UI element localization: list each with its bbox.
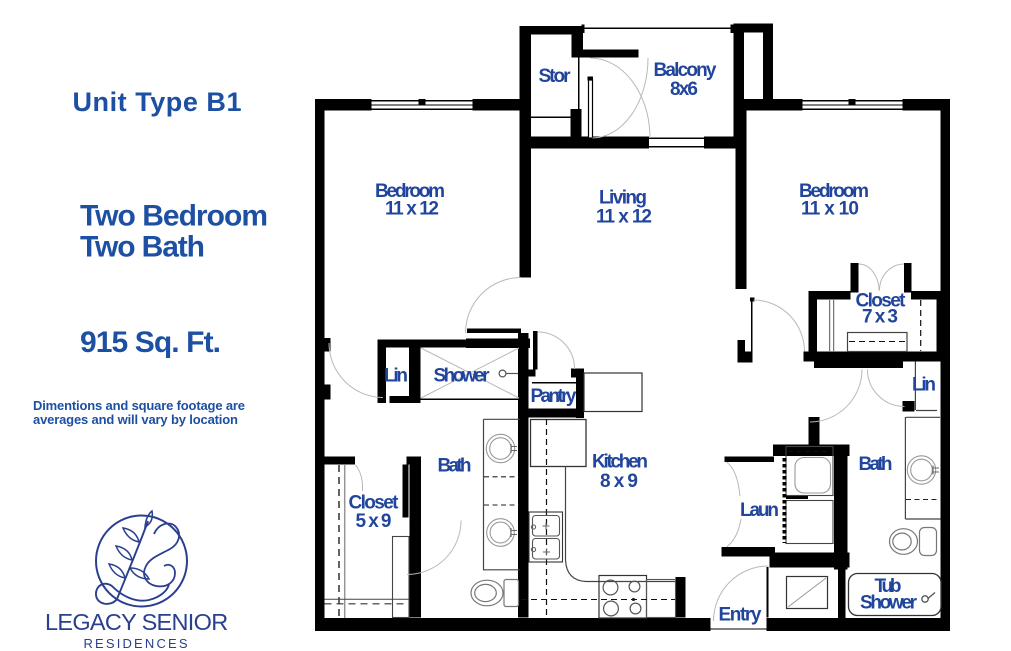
- svg-text:11 x 10: 11 x 10: [801, 199, 859, 220]
- svg-text:Balcony: Balcony: [654, 60, 717, 81]
- svg-text:Stor: Stor: [539, 66, 572, 87]
- svg-text:Shower: Shower: [860, 593, 918, 614]
- svg-text:Lin: Lin: [912, 375, 936, 396]
- svg-text:8x6: 8x6: [670, 79, 698, 100]
- svg-text:Lin: Lin: [384, 366, 408, 387]
- svg-text:Dimentions and square footage: Dimentions and square footage are: [33, 398, 245, 413]
- svg-text:Entry: Entry: [719, 605, 762, 626]
- svg-text:Laun: Laun: [740, 500, 779, 521]
- svg-text:11 x 12: 11 x 12: [596, 207, 652, 228]
- svg-text:Unit Type B1: Unit Type B1: [73, 87, 242, 117]
- svg-text:Bath: Bath: [438, 456, 472, 477]
- svg-text:Bath: Bath: [859, 454, 893, 475]
- svg-text:915 Sq. Ft.: 915 Sq. Ft.: [80, 326, 221, 359]
- svg-text:5 x 9: 5 x 9: [356, 511, 392, 532]
- svg-text:11 x 12: 11 x 12: [385, 199, 439, 220]
- svg-text:8 x 9: 8 x 9: [600, 471, 638, 492]
- svg-text:Two Bath: Two Bath: [80, 231, 205, 264]
- svg-text:Kitchen: Kitchen: [592, 452, 648, 473]
- svg-text:7 x 3: 7 x 3: [862, 307, 898, 328]
- svg-text:Two Bedroom: Two Bedroom: [80, 200, 268, 233]
- svg-text:Shower: Shower: [434, 366, 491, 387]
- svg-text:averages and will vary by loca: averages and will vary by location: [33, 412, 238, 427]
- svg-text:RESIDENCES: RESIDENCES: [84, 636, 191, 651]
- svg-text:Pantry: Pantry: [531, 386, 577, 407]
- svg-text:Living: Living: [599, 188, 647, 209]
- svg-text:LEGACY SENIOR: LEGACY SENIOR: [45, 609, 229, 635]
